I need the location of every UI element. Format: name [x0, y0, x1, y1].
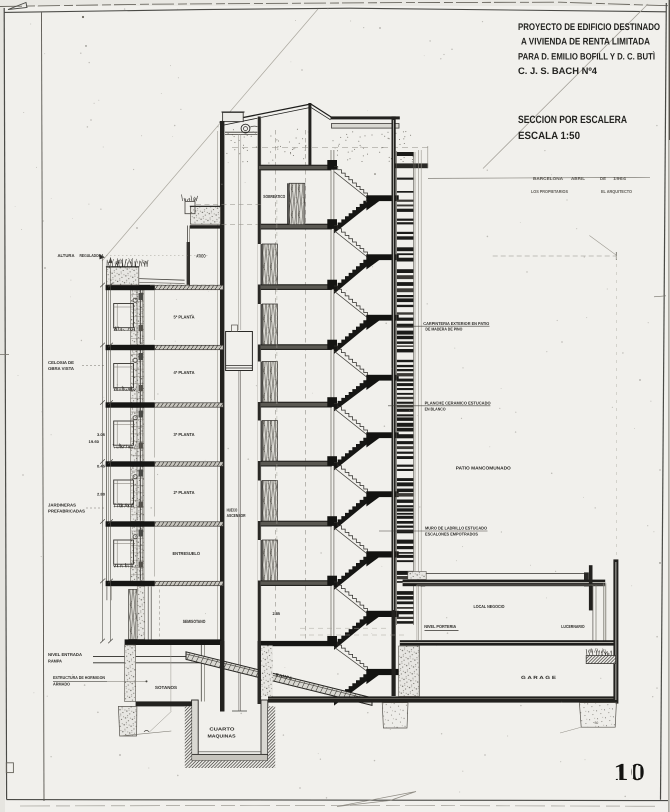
svg-text:2.80: 2.80 [97, 493, 105, 497]
svg-text:C. J. S. BACH Nº4: C. J. S. BACH Nº4 [518, 65, 598, 76]
svg-text:DE MADERA DE PINO: DE MADERA DE PINO [425, 327, 463, 332]
svg-text:BARCELONA: BARCELONA [533, 176, 563, 181]
svg-text:PATIO MANCOMUNADO: PATIO MANCOMUNADO [456, 466, 512, 471]
svg-text:JARDINERAS: JARDINERAS [48, 503, 76, 508]
svg-text:ENTRESUELO: ENTRESUELO [173, 551, 201, 556]
svg-text:0.45: 0.45 [97, 465, 105, 469]
svg-text:DE: DE [600, 176, 606, 181]
svg-text:2.85: 2.85 [273, 611, 281, 616]
svg-text:4ª PLANTA: 4ª PLANTA [174, 370, 196, 375]
svg-text:LUCERNARIO: LUCERNARIO [561, 624, 585, 629]
svg-text:ALTURA: ALTURA [58, 253, 75, 258]
svg-text:NIVEL ENTRADA: NIVEL ENTRADA [48, 652, 82, 657]
svg-text:LOS PROPIETARIOS: LOS PROPIETARIOS [531, 189, 568, 194]
svg-text:1964: 1964 [613, 176, 627, 181]
svg-text:MURO DE LADRILLO ESTUCADO: MURO DE LADRILLO ESTUCADO [425, 526, 488, 531]
svg-text:CELOSIA DE: CELOSIA DE [48, 360, 74, 365]
svg-text:19.60: 19.60 [89, 440, 100, 444]
svg-text:PROYECTO DE EDIFICIO DESTINADO: PROYECTO DE EDIFICIO DESTINADO [518, 22, 660, 33]
svg-text:A VIVIENDA DE RENTA LIMITADA: A VIVIENDA DE RENTA LIMITADA [521, 37, 650, 48]
svg-text:SOTANOS: SOTANOS [155, 685, 177, 690]
svg-text:CUARTO: CUARTO [209, 727, 235, 732]
svg-text:ASCENSOR: ASCENSOR [227, 513, 247, 518]
svg-text:ESTRUCTURA DE HORMIGON: ESTRUCTURA DE HORMIGON [53, 675, 105, 680]
svg-text:CARPINTERIA EXTERIOR EN PAT: CARPINTERIA EXTERIOR EN PATIO [423, 321, 490, 326]
svg-text:LOCAL NEGOCIO: LOCAL NEGOCIO [474, 604, 505, 609]
svg-text:G A R A G E: G A R A G E [521, 675, 556, 680]
svg-text:ARMADO: ARMADO [53, 682, 71, 687]
svg-text:SECCION POR ESCALERA: SECCION POR ESCALERA [518, 114, 627, 126]
svg-text:PARA D. EMILIO BOFILL Y D. C.: PARA D. EMILIO BOFILL Y D. C. BUTÌ [518, 50, 655, 61]
svg-text:EN BLANCO: EN BLANCO [425, 406, 447, 411]
svg-text:SEMISOTANO: SEMISOTANO [183, 619, 206, 624]
svg-text:3ª PLANTA: 3ª PLANTA [174, 432, 196, 437]
svg-text:EL ARQUITECTO: EL ARQUITECTO [601, 189, 633, 194]
svg-text:ABRIL: ABRIL [571, 176, 585, 181]
svg-text:ATICO: ATICO [196, 254, 206, 259]
svg-text:PLANCHE CERAMICO ESTUCADO: PLANCHE CERAMICO ESTUCADO [425, 401, 492, 406]
svg-text:2ª PLANTA: 2ª PLANTA [174, 490, 196, 495]
svg-text:NIVEL PORTERIA: NIVEL PORTERIA [424, 624, 457, 629]
svg-text:RAMPA: RAMPA [48, 659, 62, 664]
svg-text:MAQUINAS: MAQUINAS [208, 734, 236, 739]
svg-text:ESCALA 1:50: ESCALA 1:50 [518, 130, 580, 142]
svg-text:3.05: 3.05 [97, 433, 105, 437]
svg-text:PREFABRICADAS: PREFABRICADAS [48, 509, 85, 514]
svg-text:HUECO: HUECO [227, 508, 238, 513]
svg-text:ESCALONES EMPOTRADOS: ESCALONES EMPOTRADOS [425, 532, 478, 537]
svg-text:SOBREATICO: SOBREATICO [263, 194, 285, 199]
svg-text:OBRA VISTA: OBRA VISTA [48, 366, 74, 371]
svg-text:30: 30 [595, 721, 599, 725]
